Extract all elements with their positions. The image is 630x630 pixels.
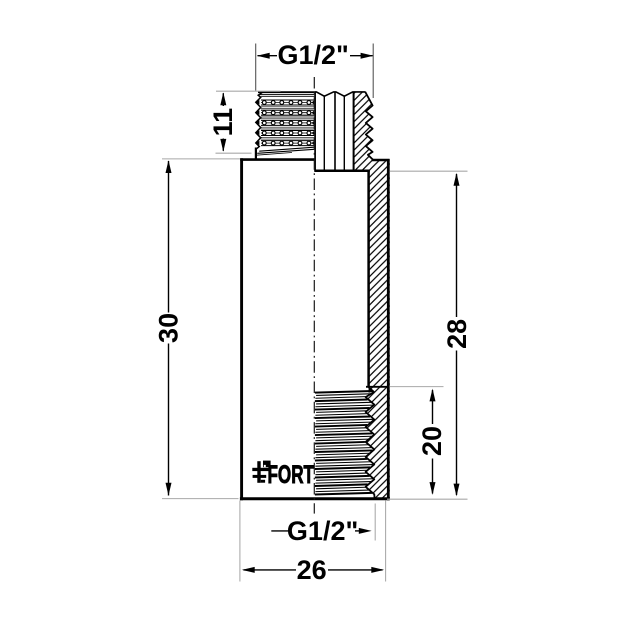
svg-text:11: 11 bbox=[208, 108, 238, 137]
svg-text:26: 26 bbox=[297, 555, 327, 585]
svg-text:G1/2": G1/2" bbox=[278, 40, 349, 70]
svg-text:30: 30 bbox=[154, 313, 184, 343]
svg-text:FORT: FORT bbox=[268, 461, 315, 489]
svg-text:G1/2": G1/2" bbox=[287, 516, 358, 546]
svg-text:28: 28 bbox=[442, 319, 472, 349]
svg-text:20: 20 bbox=[417, 426, 447, 456]
